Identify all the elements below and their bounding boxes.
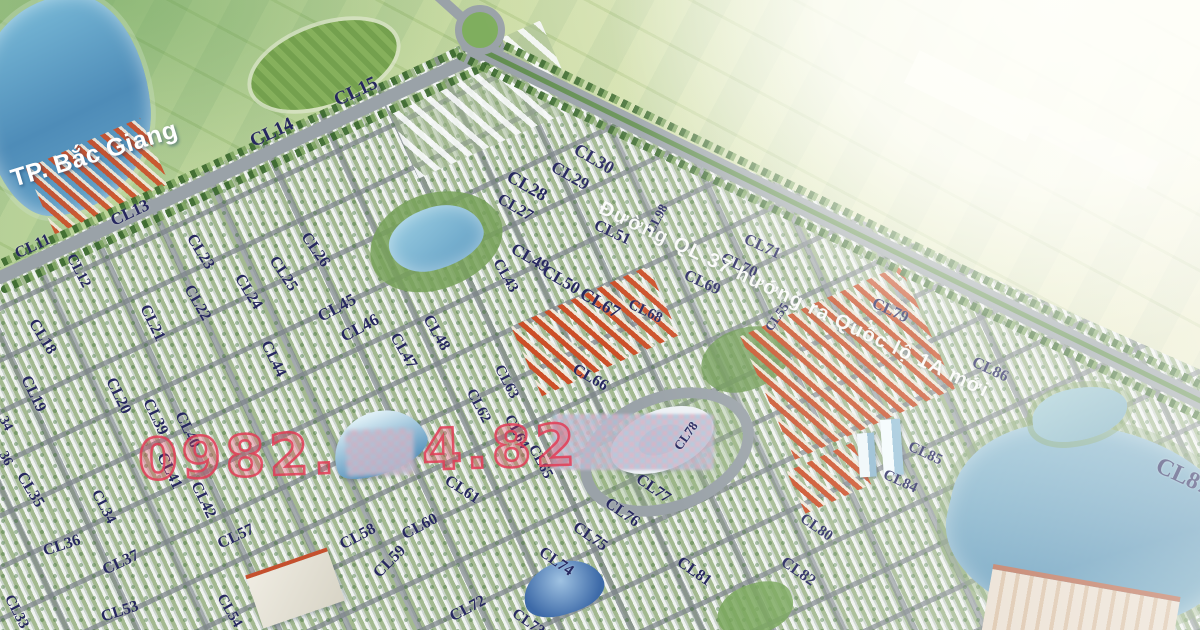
plot-label-cl22: CL22 — [180, 282, 215, 324]
plot-label-cl18: CL18 — [24, 316, 60, 358]
plot-label-cl44: CL44 — [257, 338, 290, 380]
plot-label-cl78: CL78 — [671, 419, 702, 454]
plot-label-cl36: CL36 — [41, 532, 83, 561]
plot-label-cl85: CL85 — [905, 439, 945, 470]
plot-label-cl71: CL71 — [741, 231, 783, 263]
plot-label-cl68: CL68 — [625, 297, 665, 328]
plot-label-cl74: CL74 — [535, 544, 577, 581]
plot-label-36: 36 — [0, 449, 15, 469]
plot-label-cl23: CL23 — [182, 231, 218, 273]
watermark-suffix: 4.82 — [421, 412, 580, 483]
plot-label-cl35: CL35 — [12, 469, 48, 511]
plot-label-cl81: CL81 — [673, 554, 715, 591]
plot-label-cl67: CL67 — [576, 283, 624, 323]
plot-label-cl76: CL76 — [601, 495, 643, 532]
plot-label-cl59: CL59 — [370, 542, 410, 582]
plot-label-cl72: CL72 — [447, 592, 489, 626]
plot-label-cl66: CL66 — [569, 361, 611, 396]
plot-label-cl48: CL48 — [419, 312, 454, 354]
plot-label-cl11: CL11 — [12, 231, 53, 263]
plot-label-34: 34 — [0, 414, 15, 434]
watermark-prefix: 0982. — [137, 421, 339, 494]
plot-label-cl50: CL50 — [538, 261, 583, 299]
plot-label-cl84: CL84 — [880, 467, 920, 498]
plot-label-cl87: CL87 — [1151, 453, 1200, 502]
plot-label-cl75: CL75 — [569, 519, 611, 556]
plot-label-cl63: CL63 — [490, 362, 522, 402]
plot-label-cl34: CL34 — [87, 487, 119, 527]
plot-label-cl24: CL24 — [230, 271, 266, 313]
masterplan-canvas: CL11CL12CL13CL14CL15CL18CL19CL20CL21CL22… — [0, 0, 1200, 630]
plot-label-cl79: CL79 — [869, 295, 911, 327]
plot-label-cl19: CL19 — [17, 373, 50, 415]
plot-labels-layer: CL11CL12CL13CL14CL15CL18CL19CL20CL21CL22… — [0, 0, 1200, 630]
plot-label-cl82: CL82 — [777, 554, 819, 591]
plot-label-cl33: CL33 — [0, 592, 32, 630]
plot-label-cl26: CL26 — [297, 229, 334, 271]
plot-label-cl12: CL12 — [62, 251, 94, 291]
plot-label-cl57: CL57 — [215, 521, 257, 553]
plot-label-cl25: CL25 — [265, 253, 301, 295]
plot-label-cl15: CL15 — [331, 72, 381, 111]
plot-label-cl60: CL60 — [399, 510, 441, 544]
plot-label-cl14: CL14 — [247, 113, 297, 152]
plot-label-cl37: CL37 — [100, 547, 142, 579]
plot-label-cl58: CL58 — [337, 520, 379, 554]
plot-label-cl77: CL77 — [632, 471, 674, 508]
plot-label-cl53: CL53 — [99, 598, 141, 627]
plot-label-cl73: CL73 — [508, 606, 547, 630]
plot-label-cl13: CL13 — [107, 195, 152, 230]
plot-label-cl20: CL20 — [102, 375, 135, 417]
plot-label-cl47: CL47 — [386, 330, 421, 372]
plot-label-cl54: CL54 — [213, 591, 246, 630]
plot-label-cl21: CL21 — [136, 302, 169, 344]
watermark-blurred-digits — [346, 428, 416, 476]
plot-label-cl80: CL80 — [796, 511, 835, 545]
